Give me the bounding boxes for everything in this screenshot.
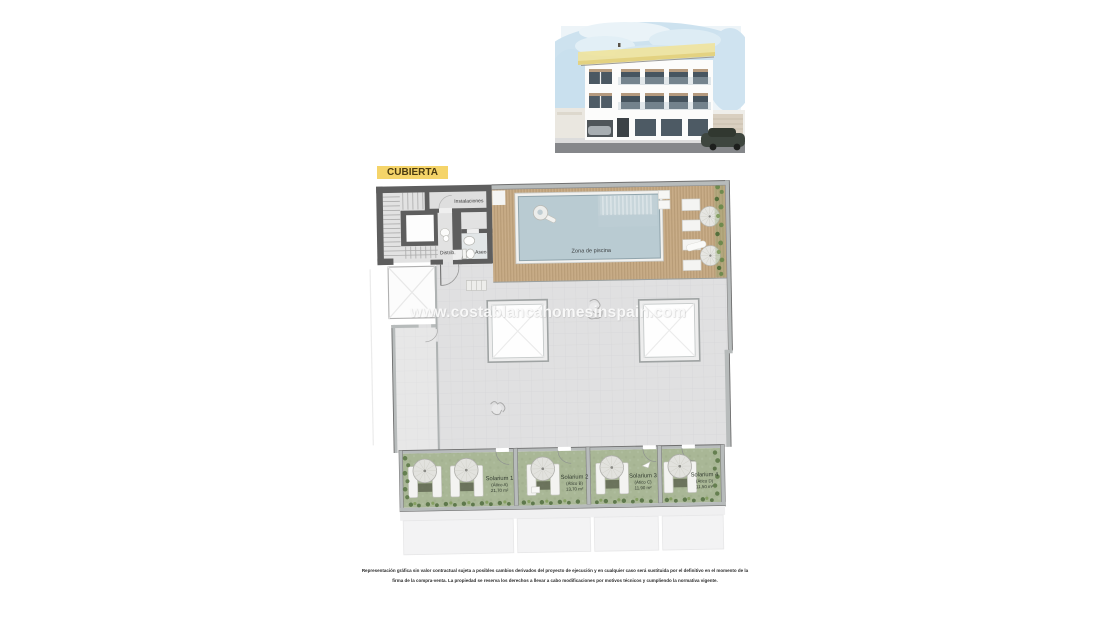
svg-text:Instalaciones: Instalaciones xyxy=(454,198,484,205)
svg-text:(Ático D): (Ático D) xyxy=(696,478,714,483)
svg-text:(Ático A): (Ático A) xyxy=(491,482,508,487)
svg-text:(Ático C): (Ático C) xyxy=(634,479,652,484)
svg-text:Zona de piscina: Zona de piscina xyxy=(571,248,611,255)
svg-text:21,70 m²: 21,70 m² xyxy=(491,488,509,493)
svg-text:Aseo: Aseo xyxy=(475,250,487,256)
svg-text:(Ático B): (Ático B) xyxy=(566,481,583,486)
svg-text:13,70 m²: 13,70 m² xyxy=(566,486,584,491)
svg-text:Distrib.: Distrib. xyxy=(440,250,456,256)
svg-text:11,50 m²: 11,50 m² xyxy=(696,484,714,489)
svg-text:11,90 m²: 11,90 m² xyxy=(635,485,653,490)
